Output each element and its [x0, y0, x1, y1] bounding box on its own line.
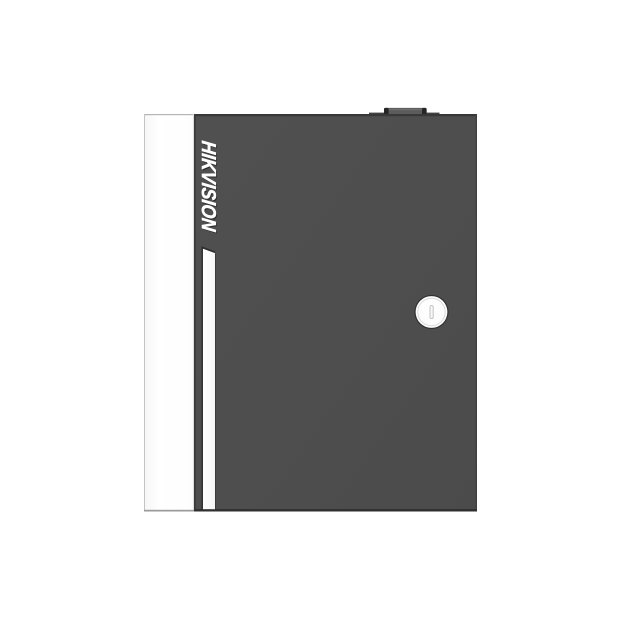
svg-text:HIKVISION: HIKVISION	[197, 140, 219, 233]
